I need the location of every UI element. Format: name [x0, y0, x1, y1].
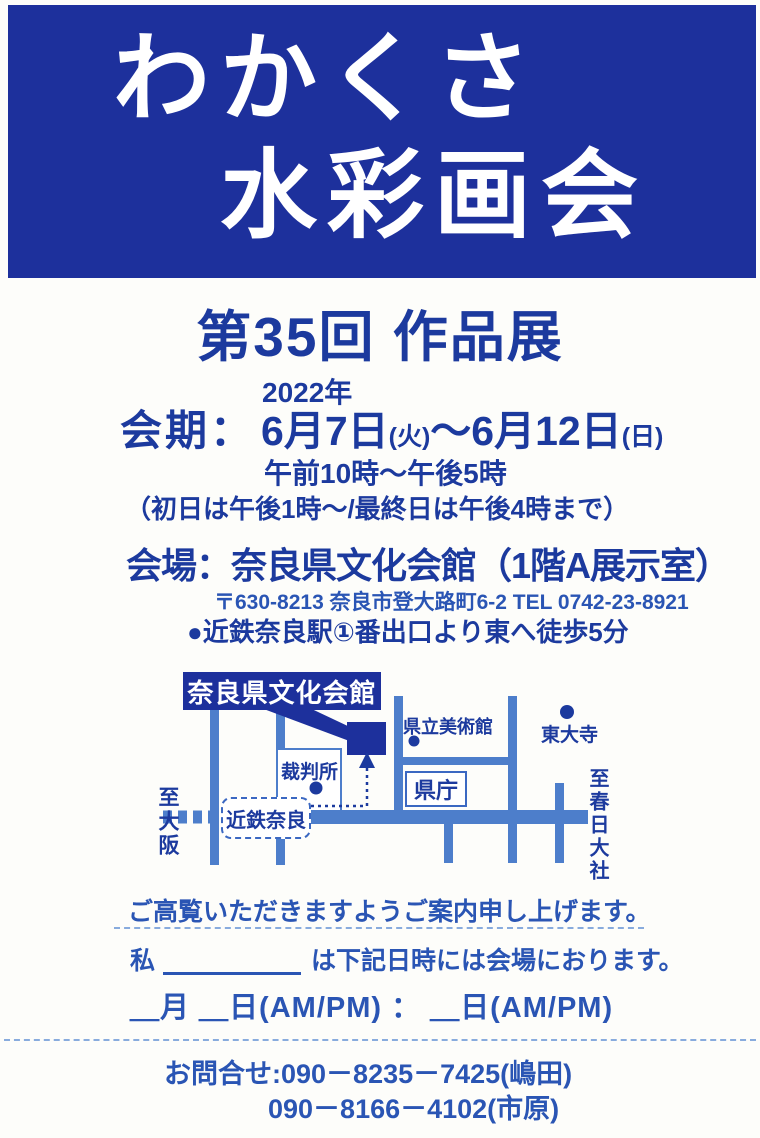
road-vertical-prefoffice — [394, 696, 403, 823]
banner: わかくさ 水彩画会 — [8, 5, 756, 278]
road-vertical-right-short — [555, 783, 564, 863]
schedule-label: 会期： — [120, 397, 255, 458]
road-vertical-east — [508, 696, 517, 863]
map-todaiji-label: 東大寺 — [541, 720, 598, 747]
contact-phone2: 090－8166－4102(市原) — [268, 1087, 559, 1126]
walking-route-arrowhead — [359, 752, 375, 768]
schedule-row: 会期： 6月7日 (火) ～ 6月12日 (日) — [120, 397, 663, 458]
contact-line1: お問合せ: 090－8235－7425(嶋田) — [164, 1052, 572, 1091]
exhibition-title: 第35回 作品展 — [0, 292, 760, 372]
map-venue-label: 奈良県文化会館 — [183, 672, 381, 710]
map-to-osaka-label: 至大阪 — [152, 786, 182, 858]
map-museum-label: 県立美術館 — [403, 713, 493, 739]
banner-title-line1: わかくさ — [113, 30, 541, 127]
map-pref-office-label: 県庁 — [405, 771, 467, 807]
form-suffix: は下記日時には会場におります。 — [311, 941, 684, 977]
todaiji-dot — [560, 705, 574, 719]
flyer-page: わかくさ 水彩画会 第35回 作品展 2022年 会期： 6月7日 (火) ～ … — [0, 0, 760, 1138]
schedule-note: （初日は午後1時～/最終日は午後4時まで） — [125, 489, 629, 526]
map-to-kasuga-taisha-label: 至春日大社 — [583, 768, 612, 883]
schedule-hours: 午前10時～午後5時 — [264, 452, 507, 492]
name-blank-field — [163, 950, 301, 975]
attendance-form-datetime: ＿月 ＿日(AM/PM) ： ＿日(AM/PM) — [130, 984, 613, 1026]
greeting-text: ご高覧いただきますようご案内申し上げます。 — [128, 892, 651, 928]
schedule-date-start: 6月7日 — [261, 397, 389, 457]
dashed-separator-bottom — [4, 1039, 756, 1041]
schedule-weekday-end: (日) — [622, 417, 664, 453]
banner-title-line2: 水彩画会 — [220, 147, 648, 244]
road-vertical-west — [210, 690, 219, 865]
venue-line: 会場：奈良県文化会館（1階A展示室） — [126, 537, 730, 589]
road-connector — [397, 757, 511, 765]
schedule-weekday-start: (火) — [389, 417, 431, 453]
form-prefix: 私 — [130, 941, 155, 977]
map-station-label: 近鉄奈良 — [221, 797, 311, 839]
contact-label: お問合せ: — [164, 1052, 281, 1091]
contact-phone1: 090－8235－7425(嶋田) — [281, 1052, 572, 1091]
road-vertical-south-short — [444, 823, 453, 863]
venue-access: ●近鉄奈良駅①番出口より東へ徒歩5分 — [187, 612, 629, 649]
attendance-form-line1: 私 は下記日時には会場におります。 — [130, 941, 684, 977]
map-courthouse-label: 裁判所 — [281, 757, 338, 784]
venue-building — [347, 722, 386, 755]
schedule-date-end: 6月12日 — [471, 397, 621, 457]
schedule-tilde: ～ — [430, 397, 471, 457]
dashed-separator-top — [114, 927, 644, 929]
